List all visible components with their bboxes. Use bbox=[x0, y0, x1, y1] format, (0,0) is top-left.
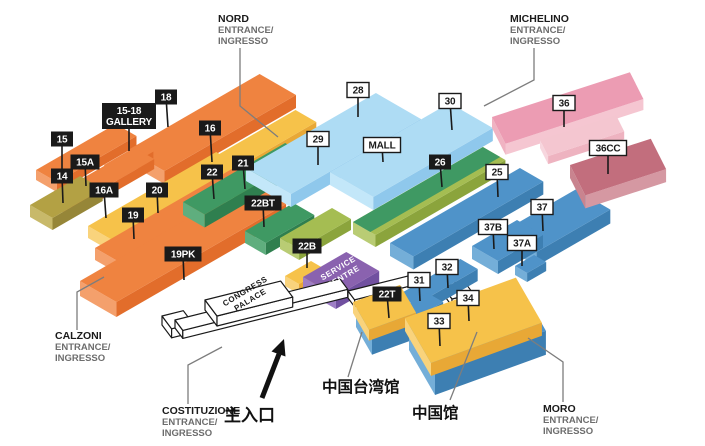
hall-36-text: 36 bbox=[559, 99, 570, 110]
hall-15A-text: 15A bbox=[76, 158, 94, 169]
main-entrance-label: 主入口 bbox=[224, 405, 275, 425]
entrance-calzoni-line1: ENTRANCE/ bbox=[55, 342, 111, 353]
hall-28-text: 28 bbox=[353, 86, 364, 97]
entrance-michelino-line2: INGRESSO bbox=[510, 36, 560, 47]
hall-MALL-text: MALL bbox=[369, 141, 396, 152]
hall-34-text: 34 bbox=[463, 294, 474, 305]
hall-25-text: 25 bbox=[492, 168, 503, 179]
china-pavilion-label: 中国馆 bbox=[412, 403, 459, 422]
main-entrance-arrow bbox=[262, 339, 286, 398]
hall-31-text: 31 bbox=[414, 276, 425, 287]
entrance-michelino-label: MICHELINOENTRANCE/INGRESSO bbox=[510, 13, 569, 47]
hall-15-text: 15 bbox=[57, 135, 68, 146]
hall-29-text: 29 bbox=[313, 135, 324, 146]
hall-19PK-text: 19PK bbox=[171, 250, 196, 261]
hall-16A-text: 16A bbox=[95, 186, 113, 197]
gallery-text-line1: 15-18 bbox=[117, 106, 142, 117]
hall-19-text: 19 bbox=[128, 211, 139, 222]
venue-map-canvas: SERVICECENTRECONGRESSPALACE15181615A1416… bbox=[0, 0, 705, 446]
hall-37B-text: 37B bbox=[484, 223, 502, 234]
hall-26-text: 26 bbox=[435, 158, 446, 169]
hall-21-text: 21 bbox=[238, 159, 249, 170]
taiwan-pavilion-leader bbox=[348, 332, 362, 377]
hall-14-text: 14 bbox=[57, 172, 68, 183]
hall-22B-label: 22B bbox=[293, 239, 322, 269]
entrance-nord-line1: ENTRANCE/ bbox=[218, 25, 274, 36]
hall-18-text: 18 bbox=[161, 93, 172, 104]
entrance-nord-line2: INGRESSO bbox=[218, 36, 268, 47]
entrance-michelino-line1: ENTRANCE/ bbox=[510, 25, 566, 36]
costituzione-leader bbox=[188, 347, 222, 404]
main-entrance-arrow-shaft bbox=[262, 354, 279, 398]
hall-16-text: 16 bbox=[205, 124, 216, 135]
hall-20-text: 20 bbox=[152, 186, 163, 197]
venue-map: SERVICECENTRECONGRESSPALACE15181615A1416… bbox=[0, 0, 705, 446]
michelino-leader bbox=[484, 48, 534, 106]
entrance-costituzione-line1: ENTRANCE/ bbox=[162, 417, 218, 428]
entrance-moro-label: MOROENTRANCE/INGRESSO bbox=[543, 403, 599, 437]
entrance-calzoni-label: CALZONIENTRANCE/INGRESSO bbox=[55, 330, 111, 364]
hall-32-text: 32 bbox=[442, 263, 453, 274]
entrance-moro-name: MORO bbox=[543, 403, 576, 415]
taiwan-pavilion-label: 中国台湾馆 bbox=[322, 377, 400, 396]
gallery-text-line2: GALLERY bbox=[106, 117, 153, 128]
hall-36CC-text: 36CC bbox=[596, 144, 621, 155]
entrance-nord-label: NORDENTRANCE/INGRESSO bbox=[218, 13, 274, 47]
entrance-moro-line2: INGRESSO bbox=[543, 426, 593, 437]
hall-33-text: 33 bbox=[434, 317, 445, 328]
hall-22BT-text: 22BT bbox=[251, 199, 275, 210]
entrance-calzoni-line2: INGRESSO bbox=[55, 353, 105, 364]
hall-22-text: 22 bbox=[207, 168, 218, 179]
hall-30-text: 30 bbox=[445, 97, 456, 108]
hall-22T-text: 22T bbox=[379, 290, 396, 301]
entrance-michelino-name: MICHELINO bbox=[510, 13, 569, 25]
entrance-moro-line1: ENTRANCE/ bbox=[543, 415, 599, 426]
hall-22B-text: 22B bbox=[298, 242, 316, 253]
entrance-calzoni-name: CALZONI bbox=[55, 330, 102, 342]
entrance-costituzione-line2: INGRESSO bbox=[162, 428, 212, 439]
hall-37-text: 37 bbox=[537, 203, 548, 214]
main-entrance-arrow-head bbox=[272, 339, 286, 357]
entrance-nord-name: NORD bbox=[218, 13, 249, 25]
hall-18-label: 18 bbox=[155, 90, 177, 128]
hall-37A-text: 37A bbox=[513, 239, 531, 250]
